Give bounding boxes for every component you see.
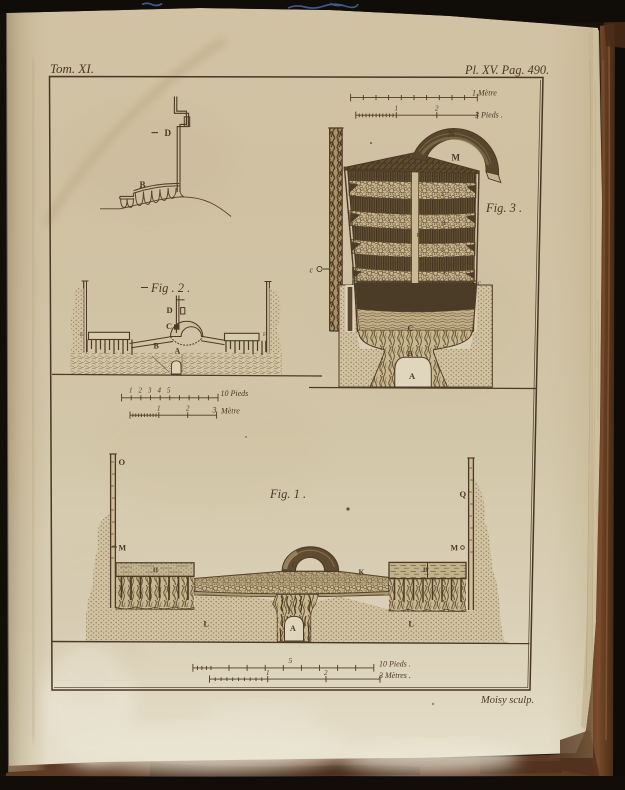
svg-text:c: c <box>310 266 314 275</box>
svg-text:B: B <box>154 342 160 351</box>
svg-text:Q: Q <box>460 489 467 499</box>
svg-text:3 Mètres .: 3 Mètres . <box>378 671 411 680</box>
svg-text:10 Pieds .: 10 Pieds . <box>379 660 411 669</box>
svg-text:1: 1 <box>157 405 161 413</box>
svg-text:1: 1 <box>129 387 133 395</box>
svg-text:5: 5 <box>289 656 293 665</box>
svg-text:B: B <box>408 349 413 358</box>
svg-text:Pl. XV. Pag. 490.: Pl. XV. Pag. 490. <box>464 63 549 77</box>
svg-text:1 Mètre: 1 Mètre <box>472 89 497 98</box>
svg-text:C: C <box>166 321 172 331</box>
svg-text:D: D <box>167 305 173 315</box>
svg-text:L: L <box>441 191 445 198</box>
svg-text:Moisy sculp.: Moisy sculp. <box>480 695 534 706</box>
svg-text:2: 2 <box>186 405 190 413</box>
svg-text:M: M <box>451 544 459 553</box>
svg-text:H: H <box>441 220 446 227</box>
svg-text:I: I <box>441 247 443 254</box>
svg-text:3 Pieds .: 3 Pieds . <box>474 111 503 120</box>
svg-text:F: F <box>263 332 266 338</box>
svg-text:5: 5 <box>167 387 171 395</box>
svg-text:2: 2 <box>324 669 328 677</box>
svg-text:O: O <box>119 457 126 467</box>
svg-text:Mètre: Mètre <box>220 407 240 416</box>
svg-text:A: A <box>409 371 416 381</box>
svg-text:Fig. 3 .: Fig. 3 . <box>485 201 522 215</box>
svg-text:N: N <box>448 129 455 139</box>
svg-text:4: 4 <box>158 387 162 395</box>
svg-text:M: M <box>119 544 127 553</box>
svg-text:A: A <box>290 624 296 633</box>
svg-text:2: 2 <box>139 387 143 395</box>
svg-text:M: M <box>452 153 461 163</box>
svg-text:Tom. XI.: Tom. XI. <box>50 61 94 76</box>
svg-text:1: 1 <box>395 105 399 113</box>
svg-text:O: O <box>352 194 357 201</box>
svg-text:B: B <box>407 301 413 310</box>
svg-text:10 Pieds: 10 Pieds <box>221 389 249 398</box>
svg-text:Fig. 1 .: Fig. 1 . <box>269 487 306 501</box>
svg-text:2: 2 <box>435 105 439 113</box>
svg-text:K: K <box>359 568 365 577</box>
svg-text:H: H <box>423 567 428 574</box>
svg-text:L: L <box>409 620 414 629</box>
svg-text:3: 3 <box>212 406 217 415</box>
svg-text:3: 3 <box>147 387 152 395</box>
svg-text:H: H <box>153 567 158 574</box>
svg-text:Q: Q <box>354 223 359 230</box>
svg-text:G: G <box>292 561 298 570</box>
svg-text:D: D <box>165 128 172 138</box>
svg-text:1: 1 <box>266 669 270 677</box>
svg-text:K: K <box>417 232 422 239</box>
svg-text:C: C <box>408 324 414 333</box>
svg-text:Fig . 2 .: Fig . 2 . <box>150 281 190 295</box>
svg-text:A: A <box>175 347 181 356</box>
svg-text:L: L <box>204 620 209 629</box>
svg-text:B: B <box>140 180 146 190</box>
svg-text:K: K <box>443 269 448 276</box>
